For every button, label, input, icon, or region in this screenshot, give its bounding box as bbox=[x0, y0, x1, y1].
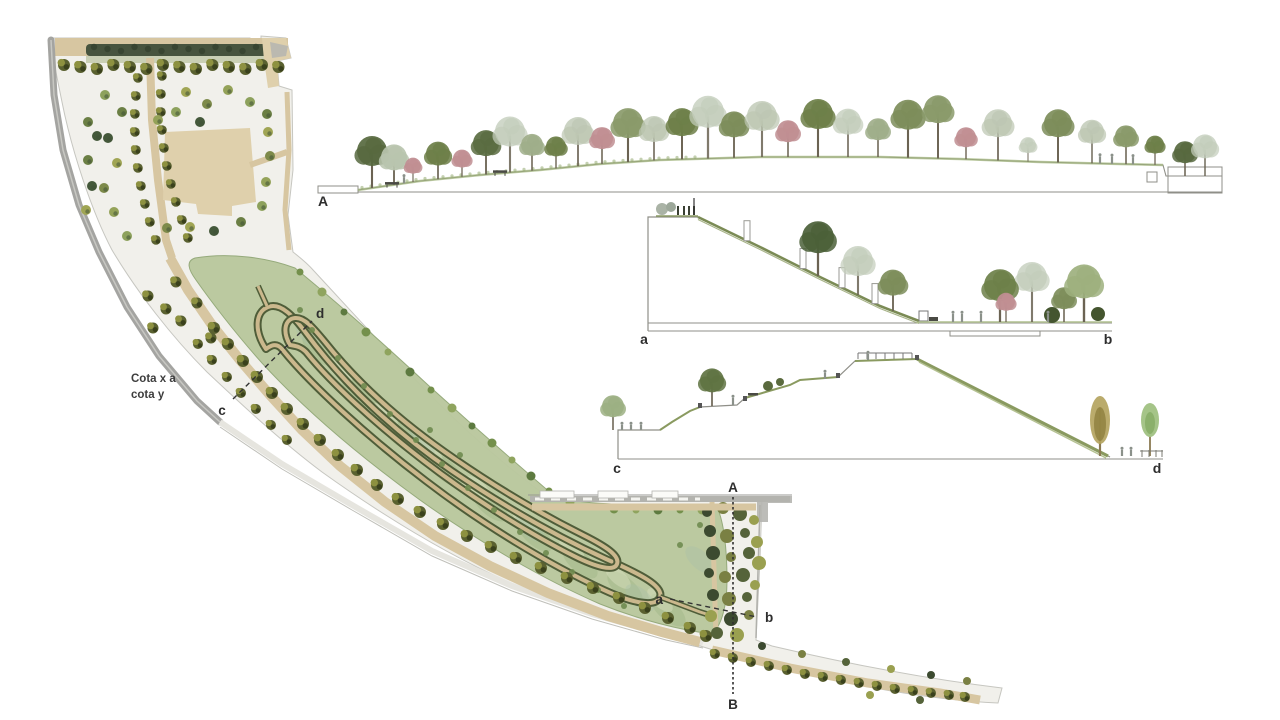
plan-annotation-cota-line2: cota y bbox=[131, 389, 165, 401]
section-cd-label-c: c bbox=[613, 460, 621, 476]
section-ab-label-a: a bbox=[640, 331, 648, 347]
plan-annotation-cota-line1: Cota x a bbox=[131, 373, 176, 385]
section-ab-label-b: b bbox=[1104, 331, 1113, 347]
landscape-plan-and-sections-drawing: A a b c d A B a b c d Cota x a cota y bbox=[0, 0, 1280, 720]
cross-section-cd-drawing bbox=[600, 351, 1163, 459]
plan-marker-d: d bbox=[316, 306, 324, 321]
cross-section-ab-drawing bbox=[648, 198, 1112, 336]
plan-marker-a: a bbox=[655, 592, 663, 607]
long-section-label-A: A bbox=[318, 193, 328, 209]
section-cd-label-d: d bbox=[1153, 460, 1162, 476]
long-section-A-drawing bbox=[318, 95, 1222, 193]
plan-marker-b: b bbox=[765, 610, 773, 625]
plan-marker-B: B bbox=[728, 697, 738, 712]
plan-marker-c: c bbox=[218, 403, 226, 418]
plan-marker-A: A bbox=[728, 480, 738, 495]
